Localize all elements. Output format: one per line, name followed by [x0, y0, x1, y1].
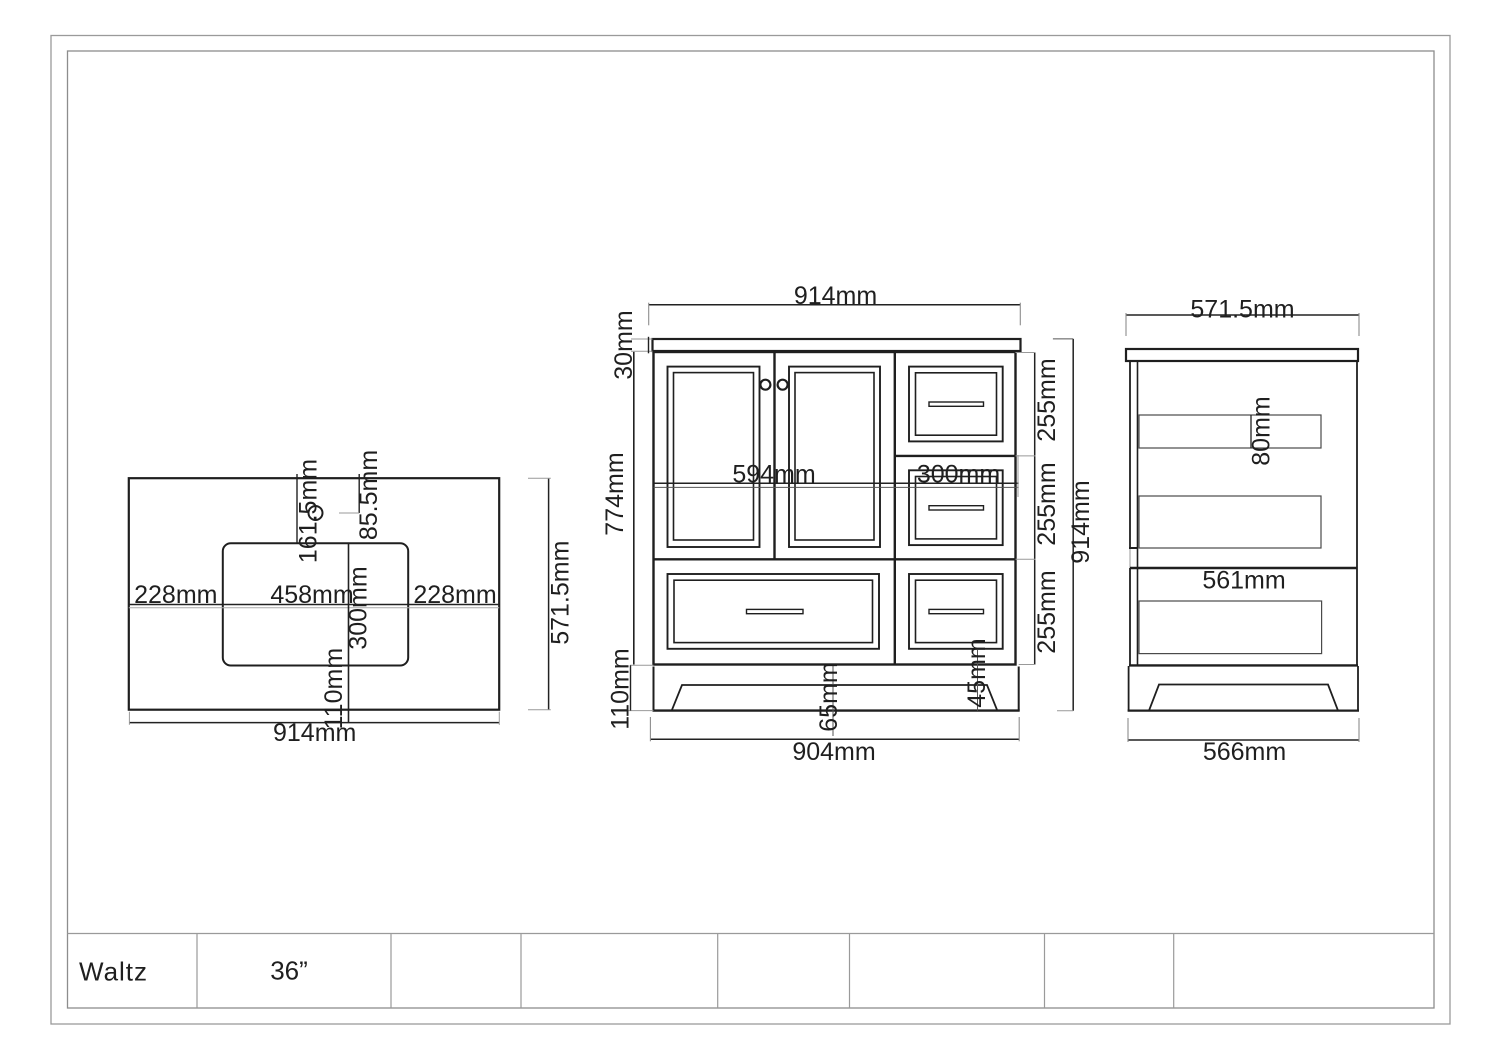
svg-text:255mm: 255mm — [1033, 570, 1061, 653]
svg-text:255mm: 255mm — [1033, 358, 1061, 441]
svg-text:566mm: 566mm — [1203, 738, 1286, 766]
svg-text:914mm: 914mm — [1067, 480, 1095, 563]
svg-text:228mm: 228mm — [413, 581, 496, 609]
svg-text:Waltz: Waltz — [79, 957, 148, 987]
svg-text:80mm: 80mm — [1248, 396, 1276, 465]
svg-text:161.5mm: 161.5mm — [295, 459, 323, 563]
svg-text:36”: 36” — [270, 956, 308, 986]
svg-text:774mm: 774mm — [601, 452, 629, 535]
svg-text:300mm: 300mm — [917, 461, 1000, 489]
svg-text:571.5mm: 571.5mm — [1190, 296, 1294, 324]
svg-text:561mm: 561mm — [1202, 567, 1285, 595]
svg-text:65mm: 65mm — [815, 662, 843, 731]
svg-text:904mm: 904mm — [792, 738, 875, 766]
svg-text:255mm: 255mm — [1033, 462, 1061, 545]
svg-text:85.5mm: 85.5mm — [355, 450, 383, 540]
svg-text:300mm: 300mm — [345, 566, 373, 649]
svg-text:228mm: 228mm — [134, 581, 217, 609]
svg-text:110mm: 110mm — [320, 648, 348, 730]
svg-text:914mm: 914mm — [794, 282, 877, 310]
svg-text:110mm: 110mm — [607, 648, 635, 730]
svg-text:594mm: 594mm — [732, 461, 815, 489]
svg-text:45mm: 45mm — [963, 638, 991, 707]
svg-text:571.5mm: 571.5mm — [547, 541, 575, 645]
svg-text:458mm: 458mm — [270, 581, 353, 609]
